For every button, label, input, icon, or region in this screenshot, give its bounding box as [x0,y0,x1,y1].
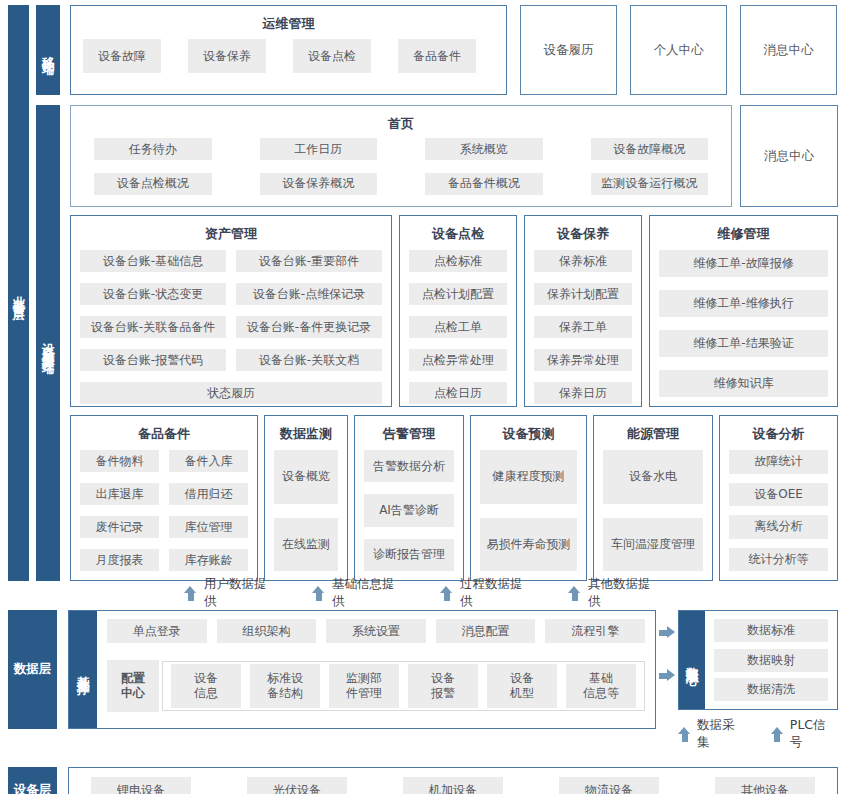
feed-text: 用户数据提供 [204,576,274,610]
group-alarm-management: 告警管理 告警数据分析AI告警诊断诊断报告管理 [354,415,464,581]
module-chip: 库存账龄 [169,549,248,571]
device-box: 锂电设备光伏设备机加设备物流设备其他设备 [68,767,838,794]
module-chip: 消息配置 [436,619,536,643]
module-chip: 设备保养 [188,39,266,73]
module-chip: 数据标准 [714,619,828,642]
layer-bar-terminal: 设备运维管理端 [36,105,60,581]
module-chip: 出库退库 [80,483,159,505]
module-chip: 锂电设备 [91,777,191,794]
inflow-label: 数据采集 [678,717,745,751]
module-chip: 设备 机型 [487,664,557,708]
module-chip: 设备保养概况 [260,173,378,195]
module-chip: 光伏设备 [247,777,347,794]
module-chip-list: 单点登录组织架构系统设置消息配置流程引擎 [107,619,645,643]
group-equipment-analysis: 设备分析 故障统计设备OEE离线分析统计分析等 [719,415,838,581]
module-chip: 废件记录 [80,516,159,538]
feed-text: 基础信息提供 [332,576,402,610]
module-chip: 设备台账-备件更换记录 [236,316,382,338]
right-arrow-icon [659,669,675,682]
module-chip: 机加设备 [403,777,503,794]
up-arrow-icon [184,586,197,601]
inflow-text: PLC信号 [790,717,836,751]
layer-bar-business-platform: 业务平台层 [8,5,29,581]
module-chip: 组织架构 [217,619,317,643]
base-support-content: 单点登录组织架构系统设置消息配置流程引擎 配置 中心 设备 信息标准设 备结构监… [97,611,655,728]
governance-column: 数据治理中心 数据标准数据映射数据清洗 数据采集 PLC信号 [678,610,838,751]
module-chip: 设备故障 [83,39,161,73]
module-chip: 数据清洗 [714,678,828,701]
group-title: 运维管理 [80,13,497,34]
management-groups-row: 资产管理 设备台账-基础信息设备台账-重要部件设备台账-状态变更设备台账-点维保… [70,215,838,407]
config-center-row: 配置 中心 设备 信息标准设 备结构监测部 件管理设备 报警设备 机型基础 信息… [107,652,645,719]
module-chip: 告警数据分析 [364,450,454,482]
module-chip: 借用归还 [169,483,248,505]
module-chip: 备件入库 [169,450,248,472]
module-chip-list: 数据标准数据映射数据清洗 [705,611,837,709]
module-chip-list: 设备台账-基础信息设备台账-重要部件设备台账-状态变更设备台账-点维保记录设备台… [80,244,382,404]
group-data-governance: 数据治理中心 数据标准数据映射数据清洗 [678,610,838,710]
group-title: 设备保养 [534,223,632,244]
flow-arrows-column [656,610,678,710]
module-chip: 数据映射 [714,649,828,672]
module-chip: 设备水电 [603,450,703,504]
group-title: 维修管理 [659,223,828,244]
group-title: 资产管理 [80,223,382,244]
mobile-standalone-boxes: 设备履历个人中心消息中心 [520,5,837,95]
feed-label: 用户数据提供 [184,576,274,610]
group-title: 设备分析 [729,423,828,444]
group-equipment-inspection: 设备点检 点检标准点检计划配置点检工单点检异常处理点检日历 [399,215,517,407]
data-feed-row: 用户数据提供 基础信息提供 过程数据提供 其他数据提供 [36,581,838,605]
device-layer-band: 设备层 锂电设备光伏设备机加设备物流设备其他设备 [8,767,838,794]
module-chip: 维修知识库 [659,370,828,397]
module-chip-list: 保养标准保养计划配置保养工单保养异常处理保养日历 [534,244,632,404]
module-chip: 健康程度预测 [480,450,577,504]
group-title: 设备预测 [480,423,577,444]
module-chip: 备品备件 [398,39,476,73]
module-chip: 保养异常处理 [534,349,632,371]
module-chip: 基础 信息等 [566,664,636,708]
group-title: 备品备件 [80,423,248,444]
mobile-row-content: 运维管理 设备故障设备保养设备点检备品备件 设备履历个人中心消息中心 [70,5,838,95]
module-chip: 点检工单 [409,316,507,338]
standalone-box: 消息中心 [740,5,837,95]
module-chip: 保养日历 [534,382,632,404]
group-title: 设备点检 [409,223,507,244]
module-chip: 物流设备 [559,777,659,794]
group-base-support: 基础支撑 单点登录组织架构系统设置消息配置流程引擎 配置 中心 设备 信息标准设… [68,610,656,729]
group-asset-management: 资产管理 设备台账-基础信息设备台账-重要部件设备台账-状态变更设备台账-点维保… [70,215,392,407]
module-chip: 库位管理 [169,516,248,538]
module-chip: 设备台账-基础信息 [80,250,226,272]
module-chip: 设备台账-关联备品备件 [80,316,226,338]
group-spare-parts: 备品备件 备件物料备件入库出库退库借用归还废件记录库位管理月度报表库存账龄 [70,415,258,581]
feed-text: 其他数据提供 [588,576,658,610]
module-chip: 监测部 件管理 [329,664,399,708]
module-chip: 备品备件概况 [425,173,543,195]
analysis-groups-row: 备品备件 备件物料备件入库出库退库借用归还废件记录库位管理月度报表库存账龄 数据… [70,415,838,581]
up-arrow-icon [678,727,691,742]
module-chip: 故障统计 [729,450,828,474]
module-chip: 设备OEE [729,483,828,507]
data-layer-band: 数据层 基础支撑 单点登录组织架构系统设置消息配置流程引擎 配置 中心 设备 信… [8,610,838,751]
module-chip: 系统设置 [326,619,426,643]
module-chip: 点检标准 [409,250,507,272]
standalone-box-message-center: 消息中心 [740,105,838,207]
architecture-diagram: 业务平台层 移动端 运维管理 设备故障设备保养设备点检备品备件 设备履历个人中心… [0,0,841,794]
feed-label: 其他数据提供 [568,576,658,610]
terminal-content-column: 首页 任务待办工作日历系统概览设备故障概况设备点检概况设备保养概况备品备件概况监… [70,105,838,581]
inflow-label: PLC信号 [771,717,836,751]
feed-label: 过程数据提供 [440,576,530,610]
module-chip: 设备台账-点维保记录 [236,283,382,305]
module-chip: 设备故障概况 [591,138,709,160]
module-chip: 状态履历 [80,382,382,404]
module-chip: 点检计划配置 [409,283,507,305]
base-support-bar: 基础支撑 [69,611,97,728]
standalone-box: 个人中心 [630,5,727,95]
module-chip: 离线分析 [729,515,828,539]
feed-text: 过程数据提供 [460,576,530,610]
module-chip: 在线监测 [274,518,338,572]
module-chip: 维修工单-故障报修 [659,250,828,277]
module-chip: 备件物料 [80,450,159,472]
module-chip: 系统概览 [425,138,543,160]
inflow-text: 数据采集 [697,717,745,751]
up-arrow-icon [568,586,581,601]
module-chip-list: 健康程度预测易损件寿命预测 [480,444,577,571]
governance-bar: 数据治理中心 [679,611,705,709]
module-chip: 点检异常处理 [409,349,507,371]
module-chip-list: 设备水电车间温湿度管理 [603,444,703,571]
module-chip: AI告警诊断 [364,494,454,526]
module-chip: 工作日历 [260,138,378,160]
module-chip-list: 故障统计设备OEE离线分析统计分析等 [729,444,828,571]
module-chip: 单点登录 [107,619,207,643]
module-chip: 易损件寿命预测 [480,518,577,572]
module-chip: 设备台账-报警代码 [80,349,226,371]
standalone-box: 设备履历 [520,5,617,95]
module-chip: 任务待办 [94,138,212,160]
group-energy-management: 能源管理 设备水电车间温湿度管理 [593,415,713,581]
module-chip-list: 任务待办工作日历系统概览设备故障概况设备点检概况设备保养概况备品备件概况监测设备… [80,134,722,197]
module-chip: 其他设备 [715,777,815,794]
module-chip: 标准设 备结构 [250,664,320,708]
group-equipment-maintenance: 设备保养 保养标准保养计划配置保养工单保养异常处理保养日历 [524,215,642,407]
group-equipment-prediction: 设备预测 健康程度预测易损件寿命预测 [470,415,587,581]
module-chip-list: 告警数据分析AI告警诊断诊断报告管理 [364,444,454,571]
module-chip-list: 点检标准点检计划配置点检工单点检异常处理点检日历 [409,244,507,404]
module-chip: 设备概览 [274,450,338,504]
module-chip: 点检日历 [409,382,507,404]
module-chip: 设备 信息 [171,664,241,708]
group-home: 首页 任务待办工作日历系统概览设备故障概况设备点检概况设备保养概况备品备件概况监… [70,105,732,207]
config-items-strip: 设备 信息标准设 备结构监测部 件管理设备 报警设备 机型基础 信息等 [162,661,645,711]
layer-bar-mobile: 移动端 [36,5,60,95]
group-ops-management: 运维管理 设备故障设备保养设备点检备品备件 [70,5,507,95]
module-chip: 设备台账-状态变更 [80,283,226,305]
group-title: 告警管理 [364,423,454,444]
module-chip-list: 设备故障设备保养设备点检备品备件 [80,34,497,73]
up-arrow-icon [312,586,325,601]
module-chip: 保养计划配置 [534,283,632,305]
group-title: 能源管理 [603,423,703,444]
module-chip: 保养标准 [534,250,632,272]
inflow-row: 数据采集 PLC信号 [678,717,838,751]
business-content-column: 移动端 运维管理 设备故障设备保养设备点检备品备件 设备履历个人中心消息中心 设… [36,5,838,605]
right-arrow-icon [659,626,675,639]
group-title: 数据监测 [274,423,338,444]
up-arrow-icon [771,727,784,742]
group-title: 首页 [80,113,722,134]
layer-bar-data: 数据层 [8,610,57,729]
module-chip: 车间温湿度管理 [603,518,703,572]
terminal-section: 设备运维管理端 首页 任务待办工作日历系统概览设备故障概况设备点检概况设备保养概… [36,105,838,581]
module-chip: 设备 报警 [408,664,478,708]
module-chip: 维修工单-维修执行 [659,290,828,317]
module-chip-list: 设备概览在线监测 [274,444,338,571]
module-chip: 维修工单-结果验证 [659,330,828,357]
home-row: 首页 任务待办工作日历系统概览设备故障概况设备点检概况设备保养概况备品备件概况监… [70,105,838,207]
config-center-label: 配置 中心 [107,660,159,712]
module-chip: 统计分析等 [729,548,828,572]
group-repair-management: 维修管理 维修工单-故障报修维修工单-维修执行维修工单-结果验证维修知识库 [649,215,838,407]
module-chip: 监测设备运行概况 [591,173,709,195]
module-chip: 设备点检概况 [94,173,212,195]
module-chip: 设备台账-重要部件 [236,250,382,272]
up-arrow-icon [440,586,453,601]
module-chip: 流程引擎 [545,619,645,643]
module-chip-list: 维修工单-故障报修维修工单-维修执行维修工单-结果验证维修知识库 [659,244,828,397]
layer-bar-device: 设备层 [8,767,57,794]
module-chip: 诊断报告管理 [364,539,454,571]
mobile-row: 移动端 运维管理 设备故障设备保养设备点检备品备件 设备履历个人中心消息中心 [36,5,838,95]
module-chip-list: 备件物料备件入库出库退库借用归还废件记录库位管理月度报表库存账龄 [80,444,248,571]
business-platform-band: 业务平台层 移动端 运维管理 设备故障设备保养设备点检备品备件 设备履历个人中心… [8,5,838,605]
module-chip: 保养工单 [534,316,632,338]
group-data-monitoring: 数据监测 设备概览在线监测 [264,415,348,581]
module-chip: 月度报表 [80,549,159,571]
module-chip: 设备台账-关联文档 [236,349,382,371]
module-chip: 设备点检 [293,39,371,73]
feed-label: 基础信息提供 [312,576,402,610]
